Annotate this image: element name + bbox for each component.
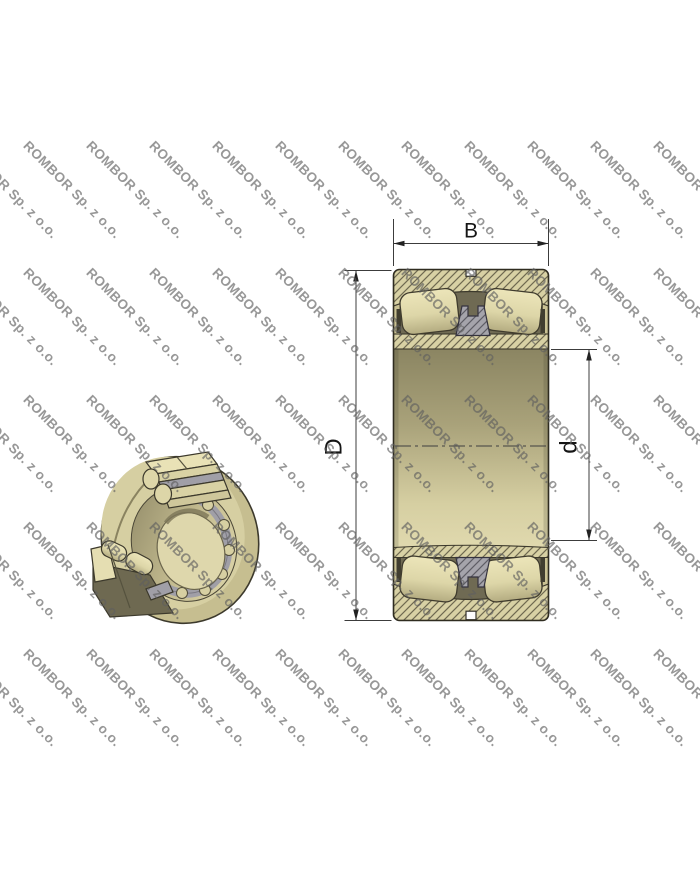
arrow-down (586, 530, 592, 541)
dimension-outer-diameter-d (345, 271, 392, 621)
isometric-cutaway-view (78, 434, 282, 645)
dimension-label-d-bore: d (556, 440, 583, 453)
arrow-right (538, 241, 549, 247)
inner-ring-bottom-section (394, 545, 549, 557)
bearing-drawing-page: B D d ROMBOR Sp. z o.o.ROMBOR Sp. z o.o.… (0, 0, 700, 869)
dimension-label-d-outer: D (321, 438, 348, 455)
technical-drawing: B D d (0, 0, 700, 869)
top-cut-face-3d (143, 452, 231, 508)
dimension-label-b: B (464, 220, 478, 243)
cross-section-view: B D d (321, 219, 598, 621)
bore-section (394, 349, 549, 548)
arrow-up (353, 271, 359, 282)
arrow-up (586, 350, 592, 361)
lubrication-notch-bottom (466, 611, 476, 620)
arrow-down (353, 610, 359, 621)
arrow-left (394, 241, 405, 247)
inner-ring-top-section (394, 334, 549, 349)
